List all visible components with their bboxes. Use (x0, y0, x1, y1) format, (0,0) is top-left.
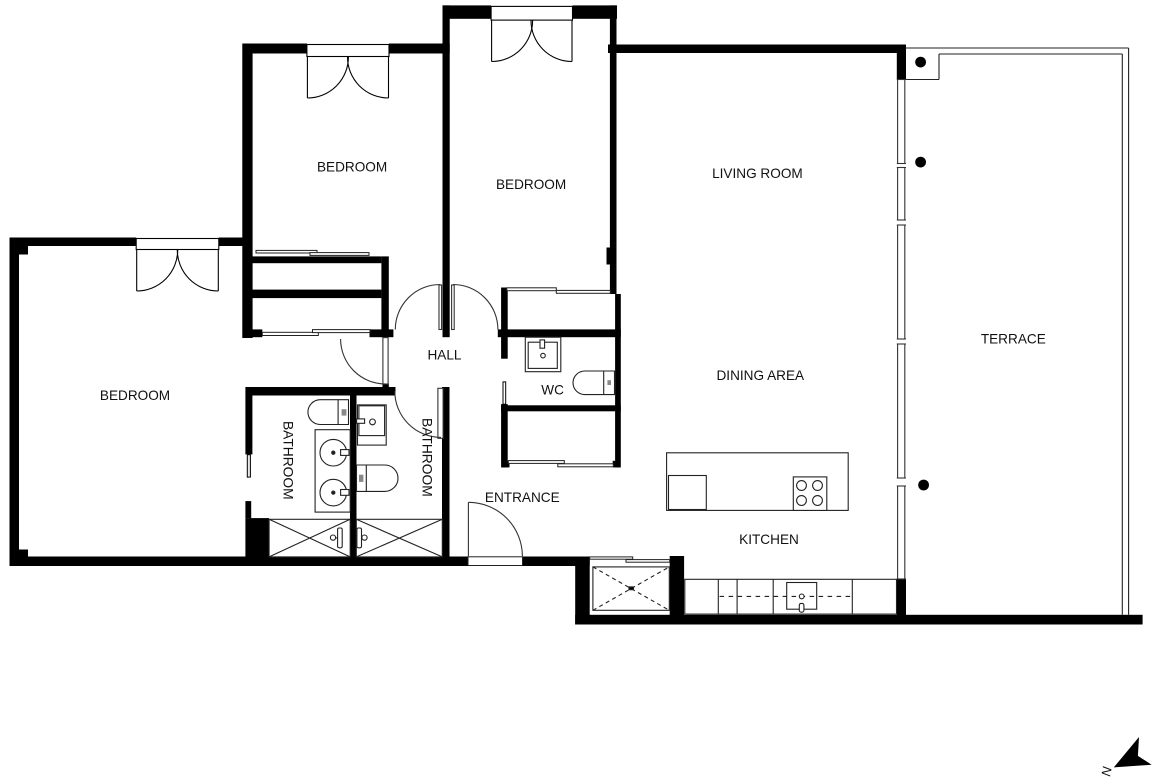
svg-text:BEDROOM: BEDROOM (100, 388, 170, 403)
svg-text:DINING AREA: DINING AREA (716, 368, 805, 383)
svg-text:HALL: HALL (427, 347, 461, 362)
svg-text:BEDROOM: BEDROOM (496, 177, 566, 192)
svg-text:BEDROOM: BEDROOM (317, 159, 387, 174)
svg-text:BATHROOM: BATHROOM (281, 421, 296, 500)
svg-text:TERRACE: TERRACE (981, 331, 1046, 346)
svg-text:KITCHEN: KITCHEN (739, 532, 799, 547)
svg-text:BATHROOM: BATHROOM (420, 418, 435, 497)
svg-text:ENTRANCE: ENTRANCE (485, 490, 560, 505)
svg-text:LIVING ROOM: LIVING ROOM (712, 166, 803, 181)
svg-text:WC: WC (541, 382, 564, 397)
